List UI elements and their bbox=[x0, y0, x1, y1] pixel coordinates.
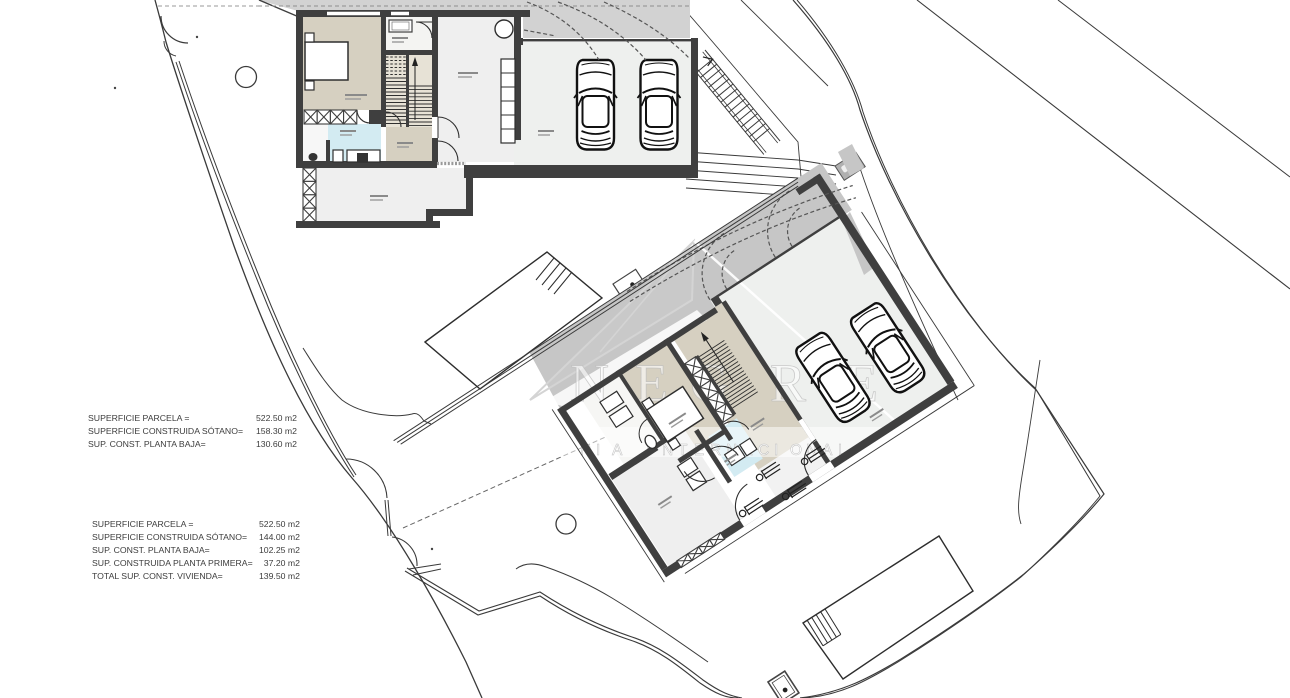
svg-text:SUPERFICIE PARCELA =: SUPERFICIE PARCELA = bbox=[92, 519, 193, 529]
svg-text:SUP. CONST. PLANTA BAJA=: SUP. CONST. PLANTA BAJA= bbox=[88, 439, 206, 449]
svg-text:130.60 m2: 130.60 m2 bbox=[256, 439, 297, 449]
svg-text:I: I bbox=[596, 442, 600, 459]
svg-text:SUPERFICIE CONSTRUIDA SÓTANO=: SUPERFICIE CONSTRUIDA SÓTANO= bbox=[92, 532, 247, 542]
svg-text:SUPERFICIE CONSTRUIDA SÓTANO=: SUPERFICIE CONSTRUIDA SÓTANO= bbox=[88, 426, 243, 436]
svg-text:144.00 m2: 144.00 m2 bbox=[259, 532, 300, 542]
svg-text:158.30 m2: 158.30 m2 bbox=[256, 426, 297, 436]
svg-text:SUP. CONSTRUIDA PLANTA PRIMERA: SUP. CONSTRUIDA PLANTA PRIMERA= bbox=[92, 558, 253, 568]
svg-text:37.20 m2: 37.20 m2 bbox=[264, 558, 300, 568]
svg-text:TOTAL SUP. CONST. VIVIENDA=: TOTAL SUP. CONST. VIVIENDA= bbox=[92, 571, 223, 581]
svg-text:522.50 m2: 522.50 m2 bbox=[259, 519, 300, 529]
svg-text:SUP. CONST. PLANTA BAJA=: SUP. CONST. PLANTA BAJA= bbox=[92, 545, 210, 555]
svg-text:522.50 m2: 522.50 m2 bbox=[256, 413, 297, 423]
svg-text:O: O bbox=[790, 442, 802, 459]
svg-text:139.50 m2: 139.50 m2 bbox=[259, 571, 300, 581]
svg-text:102.25 m2: 102.25 m2 bbox=[259, 545, 300, 555]
svg-text:I: I bbox=[774, 442, 778, 459]
svg-text:C: C bbox=[758, 442, 769, 459]
svg-text:A: A bbox=[612, 442, 623, 459]
svg-text:SUPERFICIE PARCELA =: SUPERFICIE PARCELA = bbox=[88, 413, 189, 423]
